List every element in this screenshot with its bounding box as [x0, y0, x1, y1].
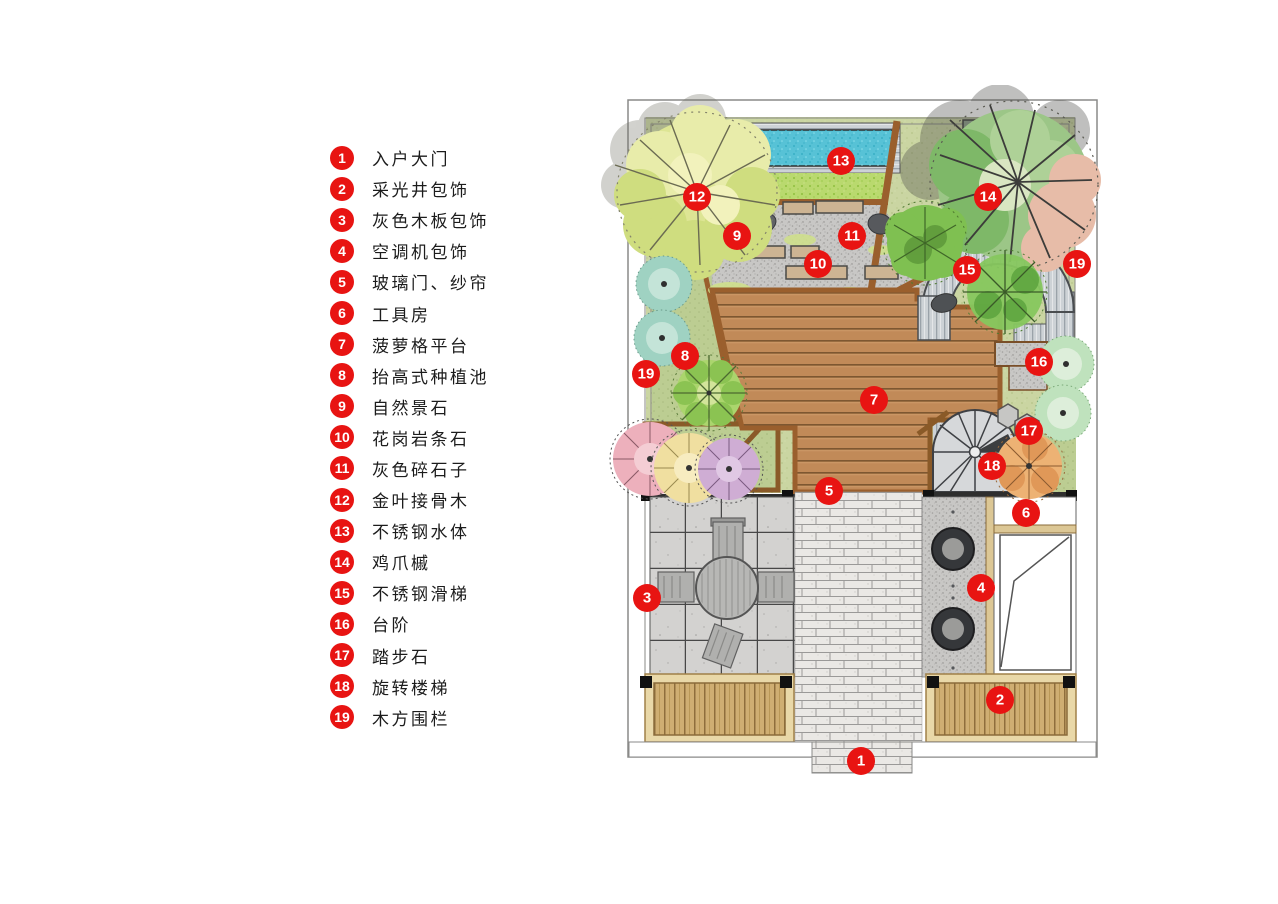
legend-badge: 1 — [330, 146, 354, 170]
legend-badge: 16 — [330, 612, 354, 636]
legend-label: 工具房 — [372, 301, 431, 326]
plan-marker-12: 12 — [683, 183, 711, 211]
legend-badge: 5 — [330, 270, 354, 294]
legend-item-10: 10花岗岩条石 — [330, 422, 489, 453]
legend-label: 灰色碎石子 — [372, 456, 470, 481]
plan-marker-19: 19 — [632, 360, 660, 388]
plan-marker-9: 9 — [723, 222, 751, 250]
legend-badge: 13 — [330, 519, 354, 543]
legend-item-12: 12金叶接骨木 — [330, 484, 489, 515]
plan-marker-1: 1 — [847, 747, 875, 775]
legend-item-7: 7菠萝格平台 — [330, 329, 489, 360]
svg-text:10: 10 — [810, 256, 827, 273]
legend-label: 花岗岩条石 — [372, 425, 470, 450]
svg-text:13: 13 — [833, 153, 850, 170]
svg-text:18: 18 — [984, 458, 1001, 475]
svg-text:16: 16 — [1031, 354, 1048, 371]
svg-text:5: 5 — [825, 483, 833, 500]
plan-marker-17: 17 — [1015, 417, 1043, 445]
plan-marker-4: 4 — [967, 574, 995, 602]
legend-item-2: 2采光井包饰 — [330, 173, 489, 204]
svg-text:7: 7 — [870, 392, 878, 409]
legend-label: 木方围栏 — [372, 705, 450, 730]
legend-item-8: 8抬高式种植池 — [330, 360, 489, 391]
legend-item-6: 6工具房 — [330, 297, 489, 328]
legend-badge: 11 — [330, 456, 354, 480]
legend-badge: 7 — [330, 332, 354, 356]
svg-text:19: 19 — [638, 366, 655, 383]
legend-label: 玻璃门、纱帘 — [372, 269, 489, 294]
legend-label: 入户大门 — [372, 145, 450, 170]
svg-text:3: 3 — [643, 590, 651, 607]
legend-badge: 14 — [330, 550, 354, 574]
legend-badge: 4 — [330, 239, 354, 263]
plan-marker-14: 14 — [974, 183, 1002, 211]
legend-badge: 18 — [330, 674, 354, 698]
plan-marker-5: 5 — [815, 477, 843, 505]
plan-marker-13: 13 — [827, 147, 855, 175]
legend-item-3: 3灰色木板包饰 — [330, 204, 489, 235]
garden-design-sheet: 1入户大门2采光井包饰3灰色木板包饰4空调机包饰5玻璃门、纱帘6工具房7菠萝格平… — [0, 0, 1278, 904]
planting-strip — [764, 173, 886, 199]
legend-label: 不锈钢水体 — [372, 518, 470, 543]
garden-plan: 1234567891011121314151617181919 — [600, 85, 1120, 785]
legend-label: 抬高式种植池 — [372, 363, 489, 388]
brick-path — [795, 492, 922, 742]
legend-badge: 2 — [330, 177, 354, 201]
legend-badge: 3 — [330, 208, 354, 232]
svg-text:4: 4 — [977, 580, 986, 597]
legend-label: 踏步石 — [372, 643, 431, 668]
legend-label: 自然景石 — [372, 394, 450, 419]
legend-label: 空调机包饰 — [372, 238, 470, 263]
legend-label: 鸡爪槭 — [372, 549, 431, 574]
plan-marker-19: 19 — [1063, 250, 1091, 278]
svg-text:1: 1 — [857, 753, 865, 770]
svg-text:8: 8 — [681, 348, 689, 365]
plan-marker-11: 11 — [838, 222, 866, 250]
legend-badge: 10 — [330, 425, 354, 449]
legend-label: 旋转楼梯 — [372, 674, 450, 699]
legend-label: 菠萝格平台 — [372, 332, 470, 357]
legend-item-1: 1入户大门 — [330, 142, 489, 173]
legend-badge: 19 — [330, 705, 354, 729]
legend-badge: 6 — [330, 301, 354, 325]
svg-text:6: 6 — [1022, 505, 1030, 522]
legend-item-9: 9自然景石 — [330, 391, 489, 422]
legend-item-19: 19木方围栏 — [330, 702, 489, 733]
plan-marker-6: 6 — [1012, 499, 1040, 527]
plan-marker-7: 7 — [860, 386, 888, 414]
legend-item-13: 13不锈钢水体 — [330, 515, 489, 546]
plan-marker-18: 18 — [978, 452, 1006, 480]
svg-text:11: 11 — [844, 228, 860, 245]
legend-badge: 8 — [330, 363, 354, 387]
tile-patio — [650, 497, 795, 677]
legend-item-14: 14鸡爪槭 — [330, 546, 489, 577]
plan-marker-16: 16 — [1025, 348, 1053, 376]
svg-text:9: 9 — [733, 228, 741, 245]
legend-item-17: 17踏步石 — [330, 640, 489, 671]
legend-item-15: 15不锈钢滑梯 — [330, 577, 489, 608]
legend-badge: 12 — [330, 488, 354, 512]
legend-label: 采光井包饰 — [372, 176, 470, 201]
svg-text:19: 19 — [1069, 256, 1086, 273]
legend-badge: 17 — [330, 643, 354, 667]
legend: 1入户大门2采光井包饰3灰色木板包饰4空调机包饰5玻璃门、纱帘6工具房7菠萝格平… — [330, 142, 489, 733]
svg-text:12: 12 — [689, 189, 706, 206]
legend-item-4: 4空调机包饰 — [330, 235, 489, 266]
legend-badge: 15 — [330, 581, 354, 605]
svg-text:17: 17 — [1021, 423, 1038, 440]
plan-marker-10: 10 — [804, 250, 832, 278]
plan-marker-2: 2 — [986, 686, 1014, 714]
legend-label: 灰色木板包饰 — [372, 207, 489, 232]
legend-label: 台阶 — [372, 611, 411, 636]
legend-item-18: 18旋转楼梯 — [330, 671, 489, 702]
plan-marker-8: 8 — [671, 342, 699, 370]
legend-item-11: 11灰色碎石子 — [330, 453, 489, 484]
legend-label: 金叶接骨木 — [372, 487, 470, 512]
legend-item-5: 5玻璃门、纱帘 — [330, 266, 489, 297]
legend-label: 不锈钢滑梯 — [372, 580, 470, 605]
svg-text:14: 14 — [980, 189, 997, 206]
legend-item-16: 16台阶 — [330, 608, 489, 639]
plan-marker-15: 15 — [953, 256, 981, 284]
svg-text:15: 15 — [959, 262, 976, 279]
plan-marker-3: 3 — [633, 584, 661, 612]
svg-text:2: 2 — [996, 692, 1004, 709]
legend-badge: 9 — [330, 394, 354, 418]
